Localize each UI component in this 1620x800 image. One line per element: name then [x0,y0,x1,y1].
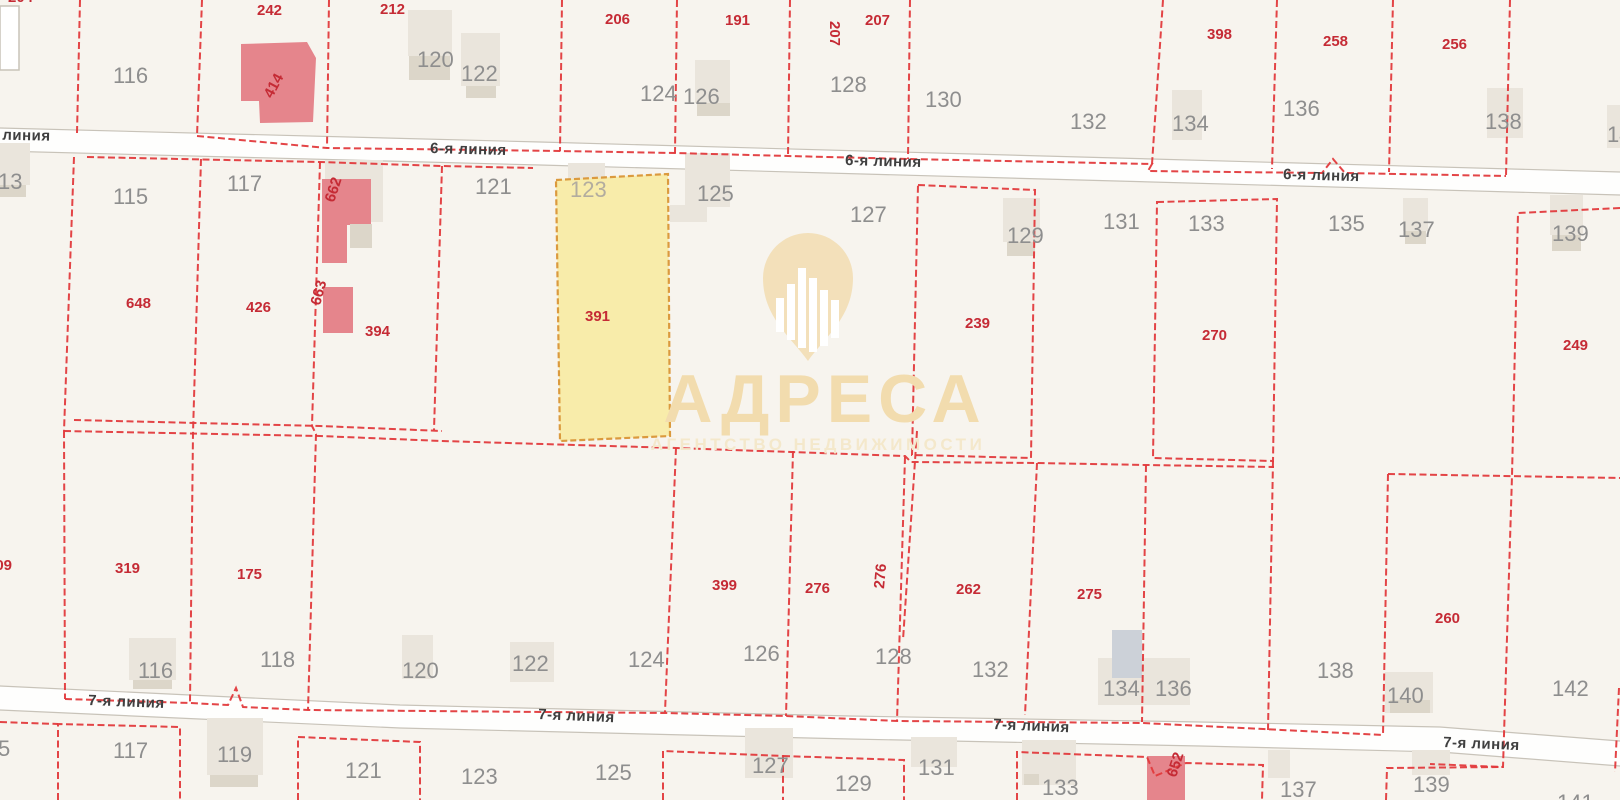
parcel-number: 256 [1442,36,1467,53]
address-number: 137 [1398,217,1435,242]
street-name-label: 6-я линия [845,152,922,171]
parcel-number: 175 [237,566,262,583]
parcel-number: 258 [1323,33,1348,50]
parcel-number: 204 [8,0,34,6]
address-number: 139 [1552,221,1589,246]
address-number: 129 [1007,223,1044,248]
address-number: 140 [1387,683,1424,708]
parcel-number: 391 [585,308,610,325]
address-number: 14 [1607,122,1620,147]
address-number: 136 [1155,676,1192,701]
address-number: 125 [697,181,734,206]
address-number: 134 [1103,676,1140,701]
parcel-number: 206 [605,11,630,28]
address-number: 123 [570,177,607,202]
street-name-label: 6-я линия [0,126,51,145]
address-number: 120 [417,47,454,72]
parcel-number: 309 [0,557,12,574]
address-number: 131 [1103,209,1140,234]
address-number: 129 [835,771,872,796]
address-number: 127 [752,753,789,778]
address-number: 134 [1172,111,1209,136]
street-name-label: 6-я линия [430,140,507,159]
address-number: 123 [461,764,498,789]
address-number: 128 [830,72,867,97]
address-number: 130 [925,87,962,112]
parcel-number: 249 [1563,337,1588,354]
address-number: 118 [260,647,295,672]
address-number: 139 [1413,772,1450,797]
address-number: 116 [113,63,148,88]
watermark-brand: АДРЕСА [663,361,986,437]
building [466,86,496,98]
street-name-label: 6-я линия [1283,166,1360,185]
address-number: 138 [1485,109,1522,134]
address-number: 122 [512,651,549,676]
building [210,775,258,787]
address-number: 125 [595,760,632,785]
address-number: 138 [1317,658,1354,683]
parcel-number: 242 [257,2,282,19]
address-number: 127 [850,202,887,227]
address-number: 135 [1328,211,1365,236]
cadastral-map[interactable]: АДРЕСА АГЕНТСТВО НЕДВИЖИМОСТИ 1161201221… [0,0,1620,800]
address-number: 115 [113,184,148,209]
address-number: 5 [0,736,10,761]
address-number: 124 [628,647,665,672]
parcel-number: 262 [956,581,981,598]
address-number: 136 [1283,96,1320,121]
address-number: 126 [683,84,720,109]
address-number: 13 [0,169,22,194]
parcel-number: 648 [126,295,151,312]
address-number: 128 [875,644,912,669]
parcel-number: 426 [246,299,271,316]
address-number: 120 [402,658,439,683]
address-number: 133 [1188,211,1225,236]
parcel-number: 399 [712,577,737,594]
parcel-number: 276 [871,563,890,589]
building [1024,774,1039,785]
address-number: 141 [1557,790,1594,800]
address-number: 119 [217,742,252,767]
address-number: 121 [475,174,512,199]
parcel-number: 319 [115,560,140,577]
building [1268,750,1290,778]
selected-parcel[interactable] [556,174,670,441]
street-name-label: 7-я линия [993,716,1070,736]
parcel-number: 212 [380,1,405,18]
building [350,224,372,248]
address-number: 142 [1552,676,1589,701]
address-number: 117 [227,171,262,196]
parcel-number: 276 [805,580,830,597]
street-name-label: 7-я линия [1443,734,1520,754]
parcel-number: 394 [365,323,391,340]
parcel-number: 207 [826,21,843,46]
building [0,6,19,70]
address-number: 137 [1280,777,1317,800]
parcel-number: 191 [725,12,750,29]
parcel-number: 207 [865,12,890,29]
address-number: 116 [138,658,173,683]
parcel-number: 398 [1207,26,1232,43]
address-number: 132 [972,657,1009,682]
parcel-number: 270 [1202,327,1227,344]
address-number: 132 [1070,109,1107,134]
address-number: 131 [918,755,955,780]
building [1112,630,1142,678]
building [670,205,707,222]
parcel-number: 275 [1077,586,1102,603]
address-number: 133 [1042,775,1079,800]
address-number: 124 [640,81,677,106]
address-number: 121 [345,758,382,783]
watermark-subtitle: АГЕНТСТВО НЕДВИЖИМОСТИ [651,435,986,454]
street-name-label: 7-я линия [88,692,165,712]
address-number: 126 [743,641,780,666]
address-number: 117 [113,738,148,763]
parcel-number: 260 [1435,610,1460,627]
building [323,287,353,333]
street-name-label: 7-я линия [538,706,615,726]
address-number: 122 [461,61,498,86]
parcel-number: 239 [965,315,990,332]
